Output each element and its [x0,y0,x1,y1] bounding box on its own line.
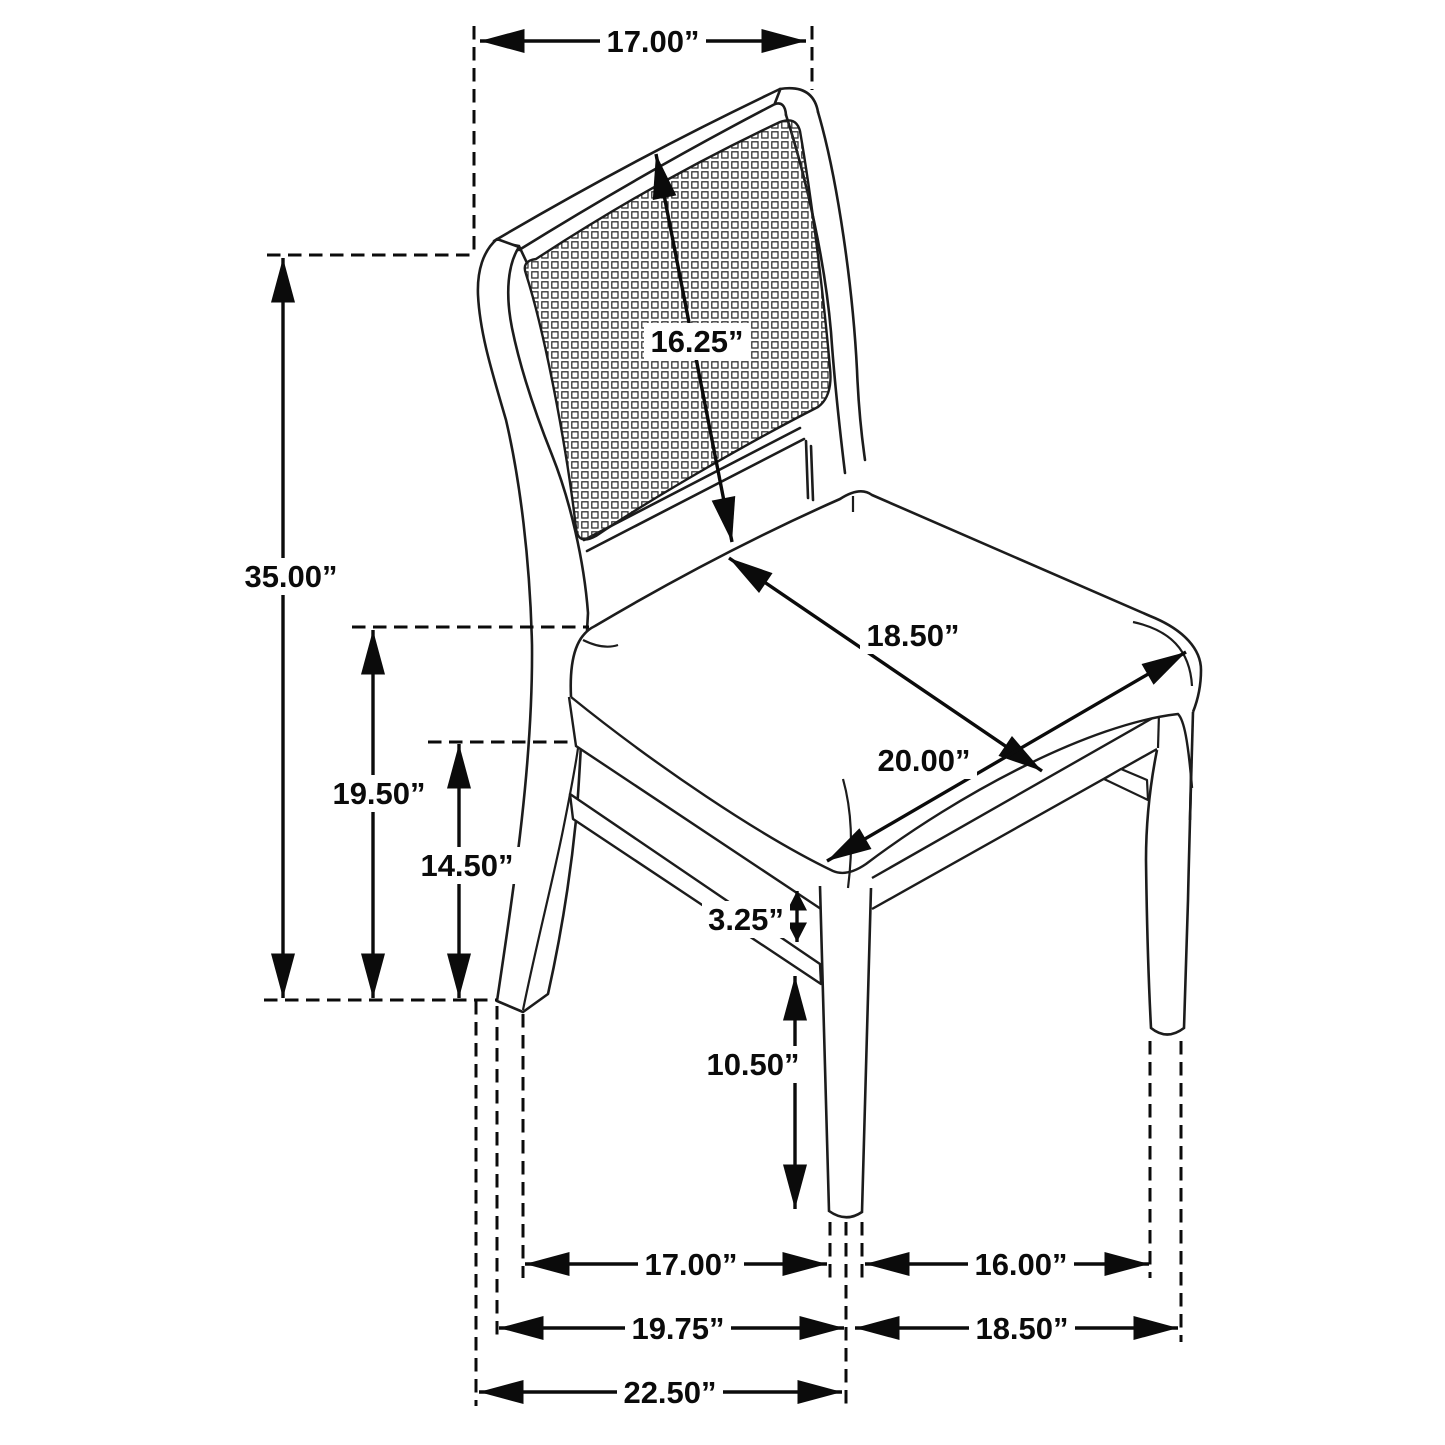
svg-text:14.50”: 14.50” [420,848,513,883]
svg-text:17.00”: 17.00” [606,24,699,59]
svg-text:3.25”: 3.25” [708,902,784,937]
svg-text:22.50”: 22.50” [623,1375,716,1410]
svg-text:19.50”: 19.50” [332,776,425,811]
svg-text:35.00”: 35.00” [244,559,337,594]
svg-text:16.00”: 16.00” [974,1247,1067,1282]
svg-text:18.50”: 18.50” [975,1311,1068,1346]
svg-text:16.25”: 16.25” [650,324,743,359]
svg-text:19.75”: 19.75” [631,1311,724,1346]
svg-text:10.50”: 10.50” [706,1047,799,1082]
svg-text:17.00”: 17.00” [644,1247,737,1282]
svg-text:20.00”: 20.00” [877,743,970,778]
svg-text:18.50”: 18.50” [866,618,959,653]
